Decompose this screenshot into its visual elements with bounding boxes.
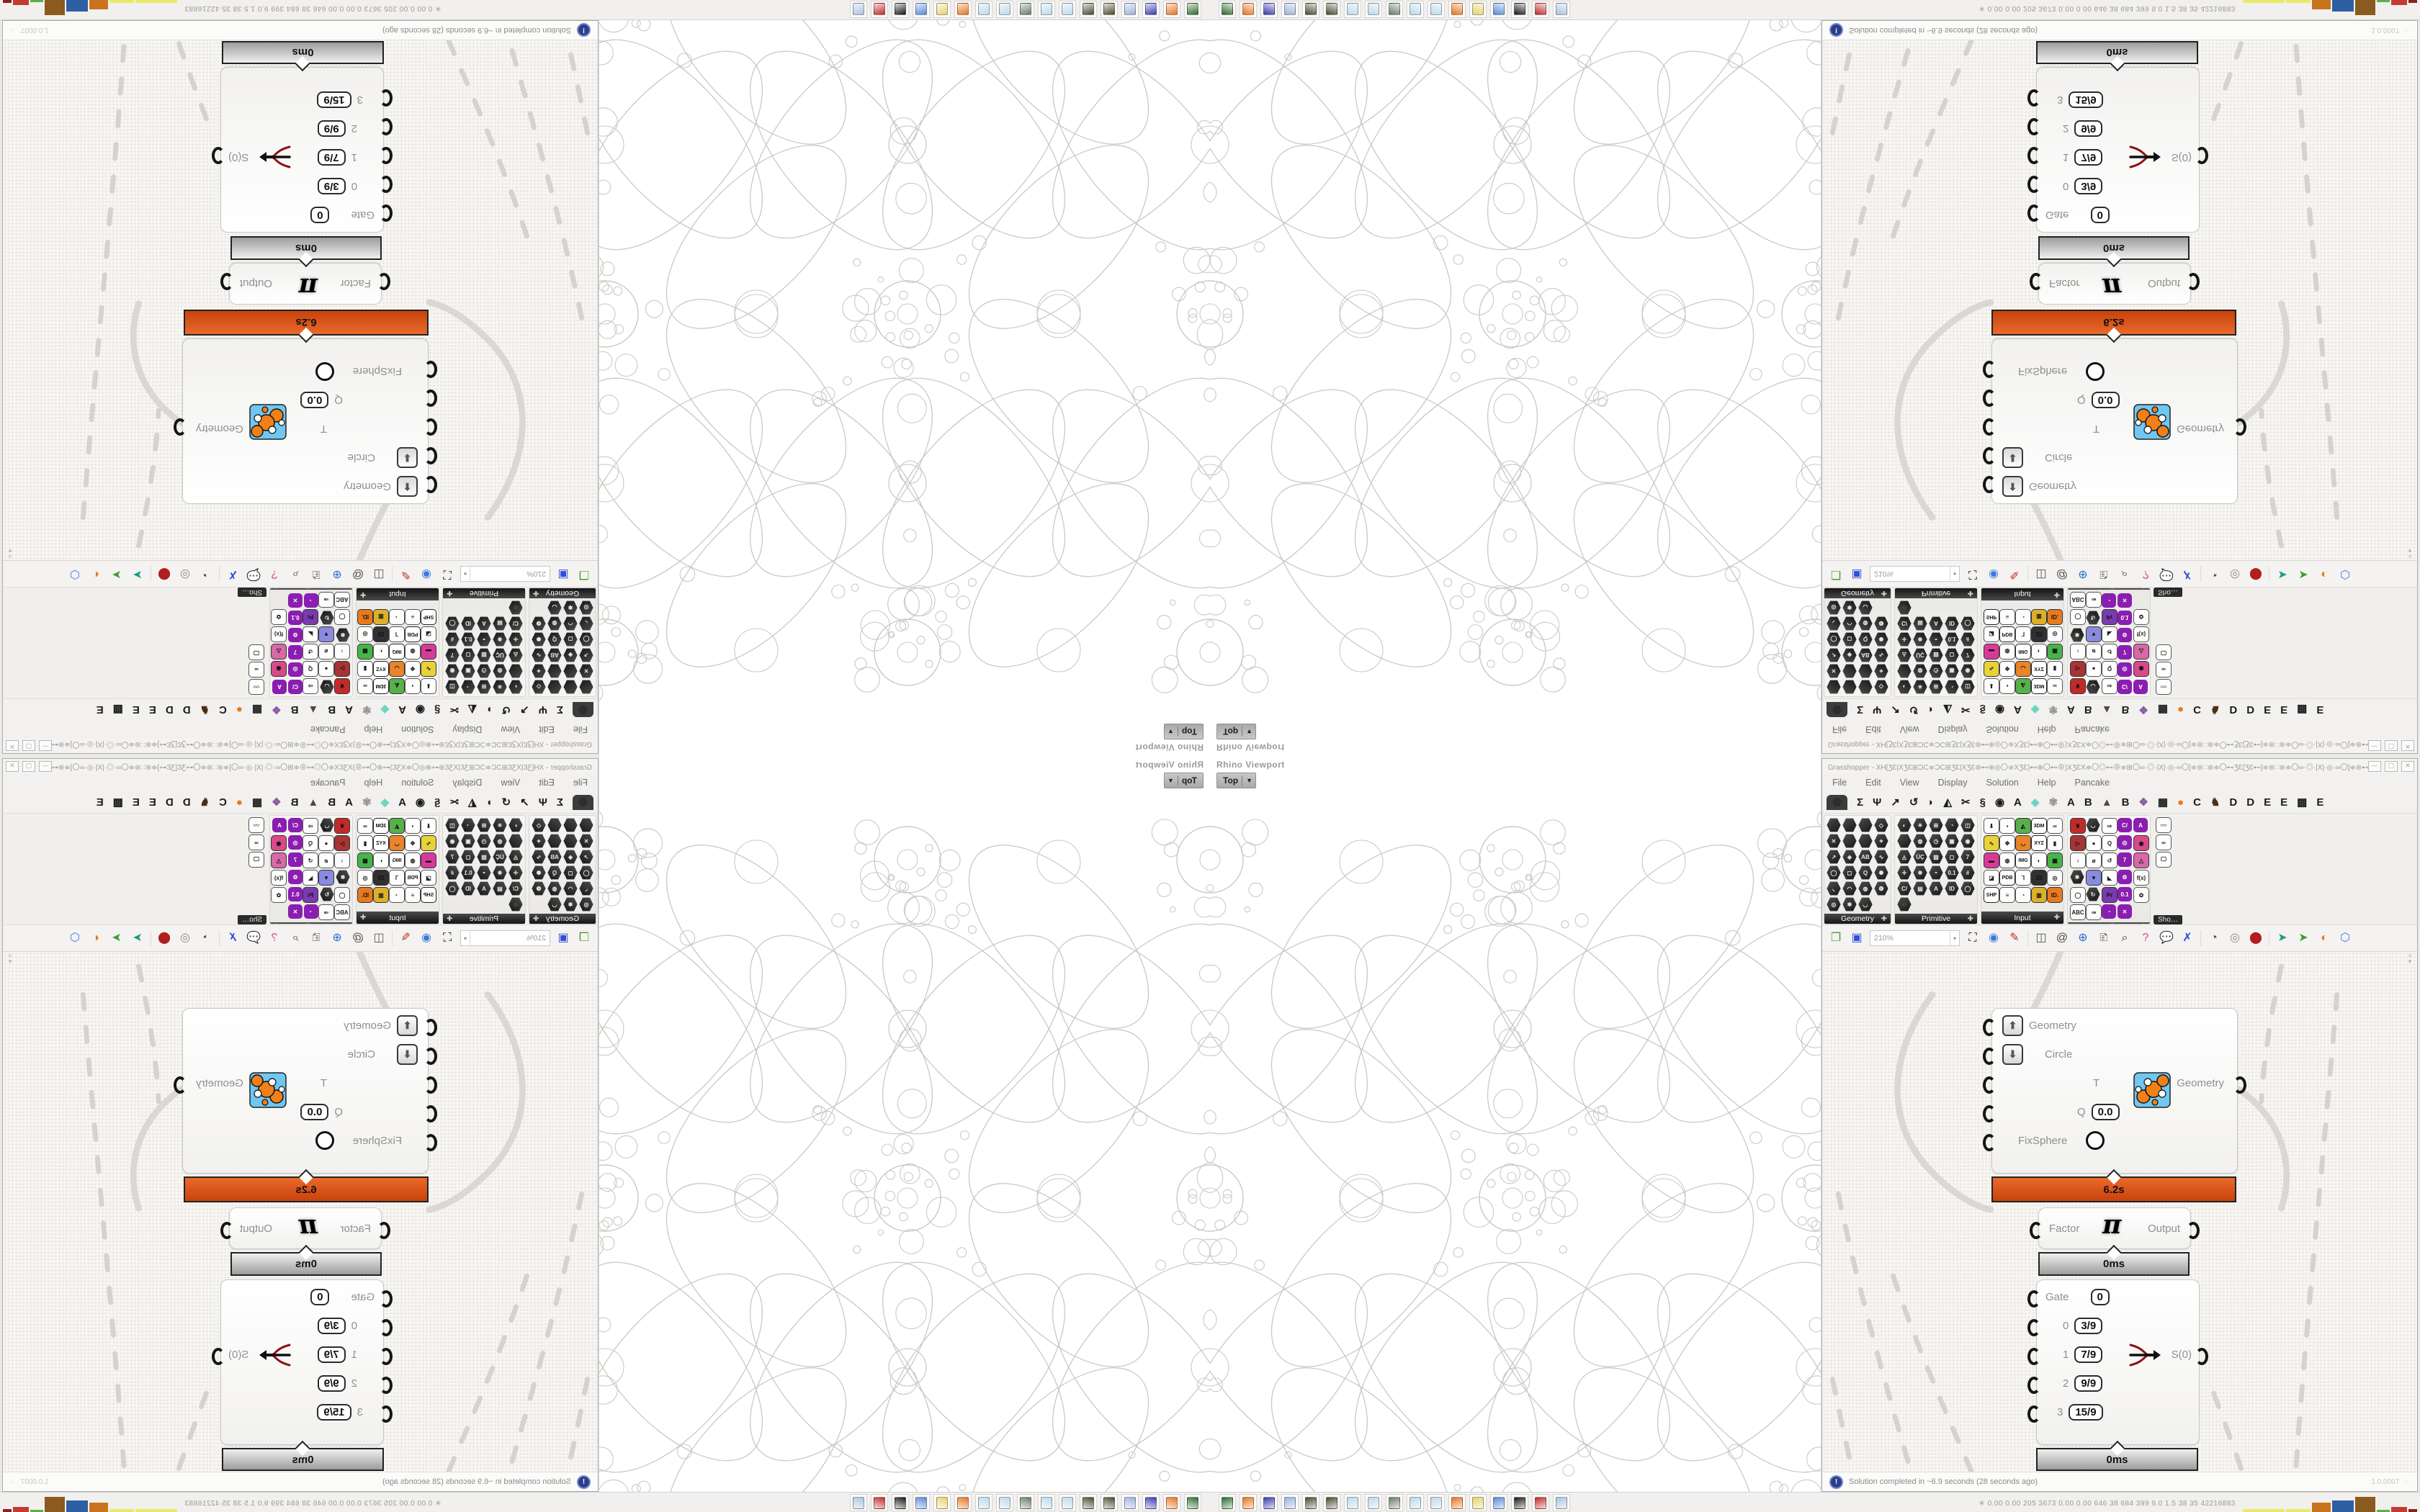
input-jack[interactable] bbox=[2027, 1405, 2040, 1423]
tab-intersect-icon[interactable]: ✂ bbox=[449, 797, 459, 808]
tab-plugin-a1-icon[interactable]: A bbox=[398, 705, 406, 716]
panel-expand-icon[interactable]: ✚ bbox=[360, 590, 366, 598]
down-arrow-widget-icon[interactable]: ⬇ bbox=[397, 1044, 418, 1065]
component-icon[interactable]: C/ bbox=[508, 881, 523, 896]
taskbar-app-mouse-settings[interactable] bbox=[1490, 1, 1507, 18]
component-icon[interactable] bbox=[547, 680, 562, 694]
close-button[interactable]: ✕ bbox=[6, 761, 19, 772]
component-icon[interactable]: Q bbox=[2102, 661, 2117, 677]
component-icon[interactable]: ▣ bbox=[1945, 834, 1959, 848]
component-icon[interactable]: ↗ bbox=[1827, 850, 1841, 864]
input-jack[interactable] bbox=[424, 1019, 437, 1036]
component-icon[interactable]: ▦ bbox=[357, 644, 373, 660]
stream-value-chip[interactable]: 3/9 bbox=[318, 1318, 346, 1334]
component-icon[interactable]: ✱ bbox=[563, 897, 578, 912]
taskbar-app-bird[interactable] bbox=[1511, 1, 1528, 18]
input-jack[interactable] bbox=[2027, 1348, 2040, 1365]
component-icon[interactable]: ◬ bbox=[508, 648, 523, 662]
menu-item-edit[interactable]: Edit bbox=[539, 778, 555, 788]
tab-vector-icon[interactable]: ↗ bbox=[520, 705, 529, 716]
panel-label[interactable]: Geometry✚ bbox=[1824, 588, 1891, 598]
component-icon[interactable]: ▪ bbox=[1999, 818, 2015, 834]
taskbar-app-floppy64[interactable] bbox=[1142, 1, 1160, 18]
component-icon[interactable]: ◍ bbox=[1858, 881, 1873, 896]
component-icon[interactable]: ◍ bbox=[1999, 852, 2015, 868]
panel-expand-icon[interactable]: ✚ bbox=[1968, 590, 1973, 598]
file-format-icon-shp[interactable]: SHP bbox=[1984, 887, 1999, 903]
component-icon[interactable]: ◻ bbox=[563, 865, 578, 880]
component-icon[interactable]: ID. bbox=[357, 609, 373, 625]
taskbar-app-sphere-2[interactable] bbox=[1080, 1, 1097, 18]
tab-display-icon[interactable]: ◉ bbox=[416, 797, 425, 808]
file-format-icon-img[interactable]: IMG bbox=[2015, 852, 2031, 868]
down-arrow-widget-icon[interactable]: ⬇ bbox=[397, 448, 418, 469]
taskbar-app-sphere-1[interactable] bbox=[1101, 1, 1118, 18]
component-icon[interactable]: ◐ bbox=[2031, 852, 2047, 868]
component-icon[interactable]: ◭ bbox=[2015, 678, 2031, 694]
component-icon[interactable]: ✕ bbox=[2117, 904, 2132, 919]
save-file-icon[interactable]: ▣ bbox=[1849, 930, 1865, 946]
wires-display-icon[interactable]: ✗ bbox=[2179, 930, 2195, 946]
stream-value-chip[interactable]: 15/9 bbox=[317, 92, 351, 109]
component-icon[interactable]: ⇨ bbox=[302, 678, 318, 694]
grasshopper-titlebar[interactable]: Grasshopper - XH[ƷƐ|XƷƐ⊞ƆC≑ƆC⊞ƷƐ|XƷƐ⊛⊷⊕◎… bbox=[3, 739, 598, 753]
component-icon[interactable]: ◭ bbox=[389, 678, 405, 694]
tab-intersect-icon[interactable]: ✂ bbox=[1961, 797, 1971, 808]
component-icon[interactable]: ◟ bbox=[579, 881, 593, 896]
output-jack[interactable] bbox=[212, 1348, 225, 1365]
component-icon[interactable]: Pr bbox=[302, 609, 318, 625]
tab-plugin-grid2-icon[interactable]: ▩ bbox=[113, 705, 123, 716]
taskbar-app-monitor[interactable] bbox=[1386, 1494, 1403, 1511]
tab-plugin-grid1-icon[interactable]: ▦ bbox=[252, 705, 262, 716]
view-eye-icon[interactable]: ◉ bbox=[418, 930, 434, 946]
component-icon[interactable]: Q bbox=[1858, 865, 1873, 880]
tab-plugin-brush-icon[interactable]: ❖ bbox=[272, 797, 281, 808]
fixsphere-toggle[interactable] bbox=[315, 1131, 334, 1150]
component-icon[interactable]: ▣ bbox=[461, 664, 475, 678]
notes-icon[interactable]: 🗈 bbox=[2096, 930, 2112, 946]
component-icon[interactable]: ⇒ bbox=[2086, 904, 2102, 920]
component-icon[interactable]: ◷ bbox=[1929, 834, 1943, 848]
tab-plugin-mountain-icon[interactable]: ▲ bbox=[2102, 797, 2112, 808]
component-icon[interactable]: f(x) bbox=[2133, 870, 2149, 886]
taskbar-app-notepad-4[interactable] bbox=[1428, 1494, 1445, 1511]
panel-expand-icon[interactable]: ✚ bbox=[2054, 914, 2060, 922]
file-format-icon-shp[interactable]: SHP bbox=[421, 609, 436, 625]
output-jack[interactable] bbox=[174, 1076, 187, 1094]
component-icon[interactable]: ÜÇ bbox=[493, 850, 507, 864]
tab-plugin-gem-icon[interactable]: ◆ bbox=[2031, 797, 2040, 808]
file-format-icon-img[interactable]: IMG bbox=[389, 644, 405, 660]
component-icon[interactable]: ❦ bbox=[334, 818, 350, 834]
taskbar-app-notepad-2[interactable] bbox=[1038, 1, 1055, 18]
component-icon[interactable] bbox=[1842, 680, 1857, 694]
tab-sets-icon[interactable]: Ψ bbox=[1873, 705, 1881, 716]
component-icon[interactable]: ✳ bbox=[493, 818, 507, 832]
component-icon[interactable]: ◡ bbox=[2086, 818, 2100, 832]
component-icon[interactable]: ≡ bbox=[405, 887, 421, 903]
component-icon[interactable]: ♁ bbox=[334, 644, 350, 660]
component-icon[interactable]: ▬ bbox=[1984, 644, 1999, 660]
component-icon[interactable]: ⇨ bbox=[2102, 818, 2117, 834]
tab-plugin-dot-icon[interactable]: ● bbox=[236, 797, 243, 808]
zoom-level-dropdown[interactable]: 210%▾ bbox=[1870, 566, 1960, 582]
panel-expand-icon[interactable]: ✚ bbox=[360, 914, 366, 922]
taskbar-app-firefox-2[interactable] bbox=[1448, 1, 1466, 18]
tab-plugin-e3-icon[interactable]: E bbox=[2316, 705, 2323, 716]
tab-mesh-icon[interactable]: ◭ bbox=[1943, 705, 1952, 716]
component-icon[interactable]: ◎ bbox=[579, 600, 593, 615]
tab-plugin-d1-icon[interactable]: D bbox=[183, 797, 191, 808]
taskbar-app-device[interactable] bbox=[1219, 1, 1236, 18]
maximize-button[interactable]: ▢ bbox=[22, 761, 35, 772]
component-icon[interactable]: A bbox=[477, 616, 491, 631]
component-icon[interactable]: ● bbox=[318, 835, 334, 851]
component-icon[interactable]: # bbox=[445, 632, 460, 647]
tab-plugin-b2-icon[interactable]: B bbox=[291, 797, 299, 808]
help-box-icon[interactable]: ? bbox=[2138, 566, 2154, 582]
preview-wire-icon[interactable]: ◎ bbox=[2227, 930, 2243, 946]
component-icon[interactable]: ✱ bbox=[563, 600, 578, 615]
component-icon[interactable]: ↺ bbox=[302, 852, 318, 868]
panel-label[interactable]: Geometry✚ bbox=[1824, 914, 1891, 924]
menu-item-file[interactable]: File bbox=[1832, 725, 1847, 735]
component-icon[interactable]: ↻ bbox=[2086, 611, 2100, 625]
component-icon[interactable]: ⅂ bbox=[2015, 626, 2031, 642]
component-stream-filter[interactable]: Gate 0 0 3/9 1 7/9 2 9/9 bbox=[220, 1279, 384, 1445]
component-icon[interactable]: 👓 bbox=[2156, 817, 2172, 833]
stream-value-chip[interactable]: 15/9 bbox=[2069, 1404, 2102, 1421]
tab-intersect-icon[interactable]: ✂ bbox=[1961, 705, 1971, 716]
component-icon[interactable]: C/ bbox=[288, 680, 302, 694]
tab-plugin-e3-icon[interactable]: E bbox=[97, 705, 104, 716]
component-icon[interactable]: ❻ bbox=[532, 881, 546, 896]
component-icon[interactable]: ◯ bbox=[2070, 887, 2086, 903]
component-icon[interactable]: 7 bbox=[1960, 850, 1975, 864]
component-icon[interactable]: ◓ bbox=[1929, 865, 1943, 880]
sketch-pen-icon[interactable]: ✎ bbox=[2007, 930, 2022, 946]
taskbar-app-calculator[interactable] bbox=[1553, 1, 1570, 18]
tab-plugin-e1-icon[interactable]: E bbox=[149, 797, 156, 808]
component-icon[interactable]: ▷ bbox=[2070, 661, 2086, 677]
component-icon[interactable]: ◎ bbox=[1827, 600, 1841, 615]
component-icon[interactable] bbox=[579, 680, 593, 694]
tab-plugin-flower-icon[interactable]: ✾ bbox=[362, 705, 372, 716]
component-icon[interactable]: ◻ bbox=[563, 632, 578, 647]
input-jack[interactable] bbox=[424, 361, 437, 378]
cluster-at-icon[interactable]: @ bbox=[350, 930, 366, 946]
menu-item-view[interactable]: View bbox=[501, 778, 520, 788]
component-icon[interactable]: ◌ bbox=[508, 897, 523, 912]
taskbar-app-firefox-1[interactable] bbox=[1163, 1494, 1180, 1511]
panel-expand-icon[interactable]: ✚ bbox=[447, 590, 452, 598]
component-icon[interactable]: ◻ bbox=[461, 648, 475, 662]
output-jack[interactable] bbox=[2195, 1348, 2208, 1365]
open-file-icon[interactable]: ❐ bbox=[1828, 566, 1844, 582]
taskbar-app-firefox-1[interactable] bbox=[1240, 1494, 1257, 1511]
component-icon[interactable]: ◎ bbox=[579, 897, 593, 912]
close-button[interactable]: ✕ bbox=[6, 741, 19, 752]
component-fixsphere[interactable]: ⬆ Geometry ⬇ Circle T Q 0.0 bbox=[182, 338, 429, 504]
component-icon[interactable]: AB bbox=[547, 850, 562, 864]
component-icon[interactable]: ♁ bbox=[334, 852, 350, 868]
component-icon[interactable]: ◇ bbox=[1874, 680, 1888, 694]
component-icon[interactable]: Q bbox=[1858, 632, 1873, 647]
tab-maths-icon[interactable]: Σ bbox=[1857, 705, 1863, 716]
file-format-icon-pdb[interactable]: PDB bbox=[1999, 870, 2015, 886]
component-icon[interactable]: ✦ bbox=[532, 664, 546, 678]
zoom-level-dropdown[interactable]: 210%▾ bbox=[460, 566, 550, 582]
notes-icon[interactable]: 🗈 bbox=[308, 566, 324, 582]
menu-item-view[interactable]: View bbox=[1900, 778, 1919, 788]
component-icon[interactable]: ● bbox=[318, 661, 334, 677]
tab-plugin-d2-icon[interactable]: D bbox=[166, 705, 174, 716]
component-fixsphere[interactable]: ⬆ Geometry ⬇ Circle T Q 0.0 bbox=[1991, 338, 2238, 504]
up-arrow-widget-icon[interactable]: ⬆ bbox=[397, 477, 418, 498]
paint-green-icon[interactable]: ➤ bbox=[2295, 930, 2311, 946]
component-icon[interactable] bbox=[563, 818, 578, 832]
component-icon[interactable]: ◓ bbox=[477, 632, 491, 647]
component-icon[interactable]: ✳ bbox=[493, 680, 507, 694]
taskbar-app-sphere-2[interactable] bbox=[1323, 1494, 1340, 1511]
component-icon[interactable]: ▷ bbox=[334, 835, 350, 851]
component-icon[interactable]: ✺ bbox=[532, 865, 546, 880]
tab-plugin-c-icon[interactable]: C bbox=[2193, 797, 2201, 808]
stream-value-chip[interactable]: 3/9 bbox=[2074, 179, 2102, 195]
stream-value-chip[interactable]: 3/9 bbox=[318, 179, 346, 195]
component-icon[interactable]: ↻ bbox=[2086, 887, 2100, 901]
grasshopper-canvas[interactable]: ≡▼ ⬆ Geometry bbox=[3, 952, 598, 1472]
input-jack[interactable] bbox=[377, 273, 390, 290]
component-icon[interactable]: A bbox=[2133, 680, 2148, 694]
component-icon[interactable]: ✛ bbox=[508, 865, 523, 880]
component-icon[interactable] bbox=[547, 818, 562, 832]
component-icon[interactable]: ∿ bbox=[532, 648, 546, 662]
component-icon[interactable] bbox=[579, 818, 593, 832]
component-icon[interactable]: # bbox=[445, 865, 460, 880]
panel-label[interactable]: Geometry✚ bbox=[529, 914, 596, 924]
component-icon[interactable]: ◡ bbox=[389, 661, 405, 677]
show-more-button[interactable]: Sho… bbox=[238, 588, 266, 597]
tab-plugin-b1-icon[interactable]: B bbox=[2084, 705, 2092, 716]
grasshopper-canvas[interactable]: ≡▼ ⬆ Geometry bbox=[1822, 952, 2417, 1472]
component-icon[interactable]: ▣ bbox=[461, 834, 475, 848]
component-icon[interactable]: △ bbox=[271, 852, 287, 868]
component-icon[interactable]: ✕ bbox=[579, 664, 593, 678]
input-jack[interactable] bbox=[424, 1076, 437, 1094]
stream-value-chip[interactable]: 9/9 bbox=[2074, 121, 2102, 138]
preview-off-icon[interactable]: ⬤ bbox=[156, 930, 172, 946]
taskbar-app-scroll[interactable] bbox=[1281, 1, 1299, 18]
preview-wire-icon[interactable]: ◎ bbox=[177, 566, 193, 582]
input-jack[interactable] bbox=[380, 204, 393, 222]
component-icon[interactable]: ⬇ bbox=[1984, 818, 1999, 834]
component-icon[interactable]: ✿ bbox=[2133, 887, 2149, 903]
component-icon[interactable]: 7 bbox=[2117, 645, 2132, 660]
grasshopper-canvas[interactable]: ≡▼ ⬆ Geometry bbox=[3, 40, 598, 560]
tab-plugin-brush-icon[interactable]: ❖ bbox=[2138, 797, 2148, 808]
component-icon[interactable]: ◯ bbox=[334, 609, 350, 625]
taskbar-app-device[interactable] bbox=[1219, 1494, 1236, 1511]
tab-plugin-e2-icon[interactable]: E bbox=[2280, 705, 2287, 716]
component-pi-factor[interactable]: Factor π Output bbox=[229, 263, 382, 305]
menu-item-help[interactable]: Help bbox=[2038, 778, 2056, 788]
component-icon[interactable]: ◇ bbox=[532, 818, 546, 832]
component-icon[interactable]: ÜÇ bbox=[1913, 850, 1927, 864]
taskbar-app-monitor[interactable] bbox=[1017, 1494, 1034, 1511]
component-icon[interactable]: ◷ bbox=[477, 664, 491, 678]
component-icon[interactable]: ≡ bbox=[405, 609, 421, 625]
component-icon[interactable]: ◉ bbox=[1960, 664, 1975, 678]
component-icon[interactable]: ⅂ bbox=[389, 870, 405, 886]
panel-expand-icon[interactable]: ✚ bbox=[2141, 588, 2146, 590]
component-icon[interactable] bbox=[1897, 834, 1912, 848]
component-icon[interactable]: ◬ bbox=[1897, 850, 1912, 864]
menu-item-view[interactable]: View bbox=[1900, 725, 1919, 735]
component-icon[interactable]: Pr bbox=[2102, 609, 2117, 625]
tab-plugin-mountain-icon[interactable]: ▲ bbox=[308, 705, 318, 716]
view-eye-icon[interactable]: ◉ bbox=[1986, 566, 2002, 582]
component-icon[interactable]: ◐ bbox=[2031, 644, 2047, 660]
component-icon[interactable]: ▥ bbox=[373, 609, 389, 625]
component-icon[interactable]: ∞ bbox=[2047, 678, 2063, 694]
q-value-chip[interactable]: 0.0 bbox=[300, 392, 328, 409]
taskbar-app-floppy64[interactable] bbox=[1260, 1494, 1278, 1511]
component-icon[interactable]: ✺ bbox=[1874, 865, 1888, 880]
tab-plugin-e3-icon[interactable]: E bbox=[2316, 797, 2323, 808]
component-icon[interactable]: ✦ bbox=[532, 834, 546, 848]
component-icon[interactable]: ◍ bbox=[493, 834, 507, 848]
tab-pancake-chicken-icon[interactable]: ♞ bbox=[200, 705, 210, 716]
tab-sets-icon[interactable]: Ψ bbox=[539, 797, 547, 808]
taskbar-app-notepad-1[interactable] bbox=[1344, 1, 1361, 18]
gem-blue-icon[interactable]: ⬡ bbox=[67, 566, 83, 582]
input-jack[interactable] bbox=[1983, 476, 1996, 493]
component-icon[interactable]: ▦ bbox=[2047, 852, 2063, 868]
component-icon[interactable] bbox=[563, 680, 578, 694]
resize-grip[interactable]: ∴ bbox=[2405, 27, 2410, 35]
show-more-button[interactable]: Sho… bbox=[2154, 915, 2182, 924]
canvas-scroll-widget[interactable]: ≡▼ bbox=[2405, 547, 2415, 559]
open-file-icon[interactable]: ❐ bbox=[1828, 930, 1844, 946]
component-icon[interactable]: ID bbox=[1945, 881, 1959, 896]
paint-teal-icon[interactable]: ➤ bbox=[130, 930, 145, 946]
input-jack[interactable] bbox=[424, 390, 437, 407]
paint-green-icon[interactable]: ➤ bbox=[2295, 566, 2311, 582]
component-icon[interactable]: 7 bbox=[1960, 648, 1975, 662]
input-jack[interactable] bbox=[1983, 1105, 1996, 1122]
open-file-icon[interactable]: ❐ bbox=[576, 930, 592, 946]
component-icon[interactable]: ◬ bbox=[508, 850, 523, 864]
tab-pancake-chicken-icon[interactable]: ♞ bbox=[2210, 797, 2220, 808]
component-icon[interactable]: ▦ bbox=[357, 852, 373, 868]
taskbar-app-sphere-1[interactable] bbox=[1101, 1494, 1118, 1511]
component-icon[interactable]: ⌀ bbox=[2086, 644, 2102, 660]
component-icon[interactable]: ◪ bbox=[1984, 626, 1999, 642]
component-icon[interactable]: ◡ bbox=[389, 835, 405, 851]
component-icon[interactable]: 0.1 bbox=[288, 611, 302, 625]
menu-item-display[interactable]: Display bbox=[1938, 778, 1968, 788]
component-icon[interactable]: ⌀ bbox=[2086, 852, 2102, 868]
component-icon[interactable]: ⊞ bbox=[477, 818, 491, 832]
component-icon[interactable]: ∿ bbox=[532, 850, 546, 864]
input-jack[interactable] bbox=[380, 176, 393, 193]
component-icon[interactable]: ID. bbox=[2047, 887, 2063, 903]
tab-plugin-gem-icon[interactable]: ◆ bbox=[381, 705, 390, 716]
component-icon[interactable]: 0.1 bbox=[461, 865, 475, 880]
component-icon[interactable]: ⅂ bbox=[389, 626, 405, 642]
component-icon[interactable]: ✿ bbox=[2133, 609, 2149, 625]
component-icon[interactable]: ∿ bbox=[1874, 850, 1888, 864]
component-icon[interactable]: ABC bbox=[334, 592, 350, 608]
file-format-icon-3dm[interactable]: 3DM bbox=[373, 678, 389, 694]
component-icon[interactable]: ❻ bbox=[532, 616, 546, 631]
menu-item-pancake[interactable]: Pancake bbox=[2074, 725, 2110, 735]
component-icon[interactable]: A bbox=[1929, 616, 1943, 631]
gem-blue-icon[interactable]: ⬡ bbox=[2337, 566, 2353, 582]
input-jack[interactable] bbox=[380, 1319, 393, 1336]
finder-magnifier-icon[interactable]: ⌕ bbox=[2117, 566, 2133, 582]
input-jack[interactable] bbox=[1983, 361, 1996, 378]
component-icon[interactable]: Q bbox=[547, 632, 562, 647]
component-icon[interactable]: ♁ bbox=[2070, 644, 2086, 660]
component-icon[interactable]: ⇒ bbox=[318, 904, 334, 920]
input-jack[interactable] bbox=[2027, 204, 2040, 222]
finder-magnifier-icon[interactable]: ⌕ bbox=[287, 930, 303, 946]
component-icon[interactable]: ▼ bbox=[318, 870, 334, 886]
component-icon[interactable]: ❦ bbox=[334, 678, 350, 694]
tab-plugin-e1-icon[interactable]: E bbox=[149, 705, 156, 716]
component-icon[interactable]: ◉ bbox=[271, 661, 287, 677]
component-icon[interactable]: ⚙ bbox=[2117, 870, 2132, 884]
taskbar-app-firefox-1[interactable] bbox=[1163, 1, 1180, 18]
component-stream-filter[interactable]: Gate 0 0 3/9 1 7/9 2 9/9 bbox=[2036, 67, 2200, 233]
component-icon[interactable]: ID. bbox=[357, 887, 373, 903]
component-icon[interactable]: ⊞ bbox=[477, 680, 491, 694]
component-icon[interactable]: 7 bbox=[445, 850, 460, 864]
input-jack[interactable] bbox=[424, 447, 437, 464]
taskbar-app-floppy64[interactable] bbox=[1260, 1, 1278, 18]
help-box-icon[interactable]: ? bbox=[266, 930, 282, 946]
component-icon[interactable]: ✕ bbox=[1827, 664, 1841, 678]
taskbar-app-red-card[interactable] bbox=[871, 1494, 888, 1511]
gha-globe-icon[interactable]: ⊕ bbox=[2075, 930, 2091, 946]
component-icon[interactable]: ◐ bbox=[508, 818, 523, 832]
component-icon[interactable]: ◔ bbox=[1945, 680, 1959, 694]
panel-label[interactable]: Primitive✚ bbox=[1895, 914, 1977, 924]
tab-plugin-a1-icon[interactable]: A bbox=[2014, 797, 2022, 808]
component-icon[interactable]: ✥ bbox=[405, 835, 421, 851]
menu-item-solution[interactable]: Solution bbox=[1986, 725, 2019, 735]
component-icon[interactable] bbox=[1827, 818, 1841, 832]
component-icon[interactable]: ABC bbox=[334, 904, 350, 920]
group-icon[interactable]: ◫ bbox=[371, 930, 387, 946]
component-icon[interactable]: ◐ bbox=[1897, 680, 1912, 694]
component-icon[interactable]: ◌ bbox=[1897, 897, 1912, 912]
fixsphere-toggle[interactable] bbox=[315, 362, 334, 381]
component-icon[interactable]: ◍ bbox=[1999, 644, 2015, 660]
component-icon[interactable]: ▤ bbox=[493, 881, 507, 896]
taskbar-app-red-card[interactable] bbox=[1532, 1494, 1549, 1511]
component-icon[interactable] bbox=[508, 664, 523, 678]
component-icon[interactable]: ↻ bbox=[320, 611, 334, 625]
file-format-icon-3dm[interactable]: 3DM bbox=[2031, 818, 2047, 834]
sketch-pen-icon[interactable]: ✎ bbox=[398, 566, 413, 582]
component-icon[interactable]: ◣ bbox=[2102, 626, 2117, 642]
input-jack[interactable] bbox=[380, 118, 393, 135]
component-icon[interactable]: ▤ bbox=[493, 616, 507, 631]
